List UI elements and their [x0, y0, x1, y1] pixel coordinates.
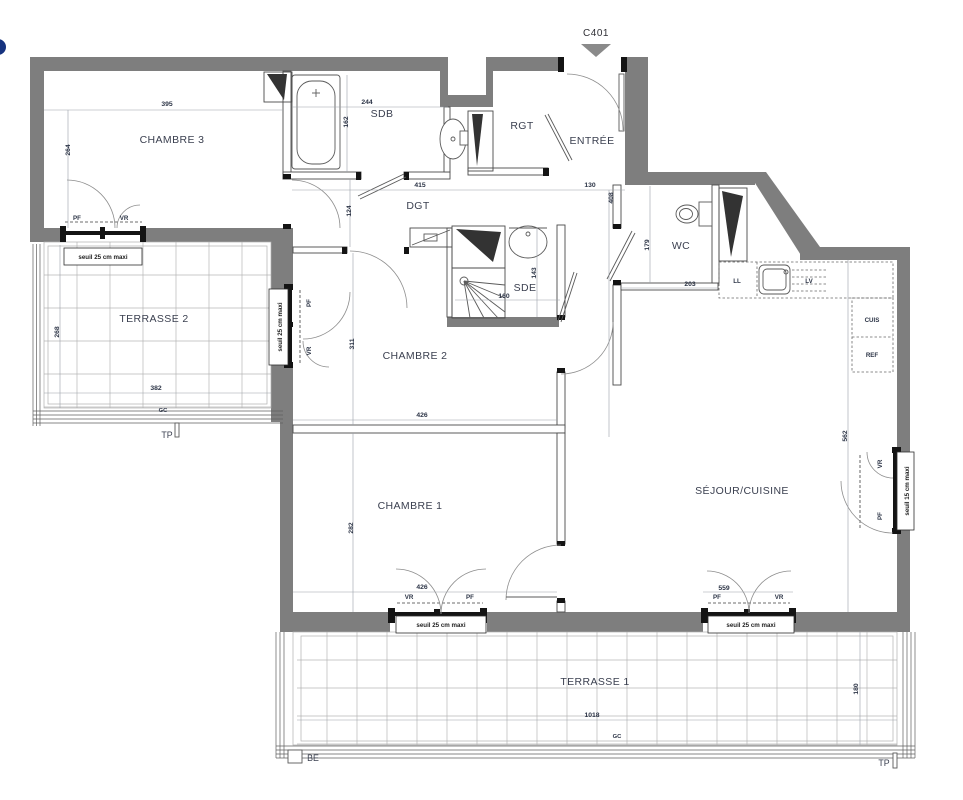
- sdb-washbasin: [440, 119, 468, 159]
- room-label-terrasse1: TERRASSE 1: [560, 676, 629, 688]
- rgt-door: [545, 114, 572, 161]
- dim-sdb-width: 244: [361, 99, 373, 106]
- unit-title: C401: [583, 28, 609, 39]
- floor-plan-drawing: C401: [0, 0, 963, 800]
- vr-label: VR: [775, 594, 784, 601]
- cooker-label: CUIS: [865, 317, 880, 324]
- dishwasher-label: LV: [805, 278, 813, 285]
- window-sejour-east: seuil 15 cm maxi VR PF: [841, 447, 914, 534]
- dim-chambre2-depth: 311: [349, 338, 356, 349]
- tp-label-terrasse2: TP: [161, 430, 172, 440]
- dim-dgt-length: 415: [414, 182, 426, 189]
- dim-entree-depth: 408: [608, 192, 615, 204]
- kitchen-units: LL LV CUIS REF: [719, 262, 893, 372]
- floor-plan-page: C401: [0, 0, 963, 800]
- dim-sde-depth: 143: [531, 267, 538, 279]
- shower-tray: [452, 268, 505, 318]
- pf-label: PF: [306, 299, 313, 307]
- gc-label-terrasse1: GC: [613, 734, 623, 740]
- dim-chambre3-width: 395: [161, 101, 173, 108]
- be-marker: [288, 750, 302, 763]
- window-chambre1: seuil 25 cm maxi VR PF: [388, 569, 487, 633]
- vr-label: VR: [877, 459, 884, 468]
- terrasse1-floor-border: [293, 632, 897, 745]
- terrasse2-floor-inner-border: [48, 246, 267, 404]
- dim-sejour-depth: 562: [842, 430, 849, 442]
- room-label-chambre2: CHAMBRE 2: [383, 350, 448, 362]
- entrance-door: [567, 74, 624, 131]
- terrasse2-grid: [44, 242, 271, 408]
- terrasse2-tp-marker: [175, 423, 179, 437]
- tp-label-terrasse1: TP: [878, 758, 889, 768]
- be-label: BE: [307, 753, 319, 763]
- room-label-terrasse2: TERRASSE 2: [119, 313, 188, 325]
- seuil-label: seuil 25 cm maxi: [277, 302, 284, 351]
- dim-chambre3-depth: 264: [65, 144, 72, 156]
- doors: [292, 74, 635, 600]
- terrasse1-grid: [297, 632, 897, 745]
- dim-terrasse1-depth: 180: [853, 683, 860, 695]
- bathtub: [292, 75, 340, 169]
- dgt-closet: [410, 228, 452, 247]
- room-label-dgt: DGT: [406, 200, 430, 212]
- chambre2-door: [350, 251, 407, 308]
- sde-washbasin: [509, 226, 547, 258]
- room-label-sde: SDE: [514, 282, 537, 294]
- fridge-label: REF: [866, 352, 879, 359]
- small-annotations: GC GC TP TP BE: [159, 408, 890, 768]
- dim-terrasse1-width: 1018: [584, 712, 599, 719]
- kitchen-tall-units: [852, 298, 893, 372]
- dim-chambre1-width: 426: [416, 584, 428, 591]
- dim-terrasse2-depth: 268: [54, 326, 61, 338]
- sejour-door: [558, 272, 613, 374]
- dim-chambre2-width: 426: [416, 412, 428, 419]
- seuil-label: seuil 25 cm maxi: [726, 622, 775, 629]
- pf-label: PF: [73, 215, 81, 222]
- wc-toilet: [676, 202, 712, 226]
- pf-label: PF: [877, 512, 884, 520]
- dim-terrasse2-width: 382: [150, 385, 162, 392]
- logo-dot: [0, 39, 6, 55]
- dim-sejour-window: 559: [718, 585, 730, 592]
- gc-label-terrasse2: GC: [159, 408, 169, 414]
- seuil-label: seuil 15 cm maxi: [904, 466, 911, 515]
- rgt-pivot-door: [468, 111, 493, 171]
- dimension-lines: [44, 75, 897, 745]
- dim-chambre1-depth: 282: [348, 522, 355, 534]
- room-labels: CHAMBRE 3 SDB RGT ENTRÉE DGT WC SDE CHAM…: [119, 108, 789, 688]
- wc-side-pivot-door: [719, 188, 747, 261]
- window-chambre2-west: seuil 25 cm maxi PF VR: [269, 284, 350, 368]
- room-label-rgt: RGT: [510, 120, 534, 132]
- pf-label: PF: [713, 594, 721, 601]
- seuil-label: seuil 25 cm maxi: [416, 622, 465, 629]
- terrasse2-floor-border: [44, 242, 271, 408]
- dim-dgt-width: 124: [346, 205, 353, 217]
- dim-sdb-depth: 162: [343, 116, 350, 128]
- dim-wc-width: 203: [684, 281, 696, 288]
- window-sejour-south: seuil 25 cm maxi PF VR: [701, 571, 796, 633]
- vr-label: VR: [306, 346, 313, 355]
- room-label-sdb: SDB: [371, 108, 394, 120]
- dim-wc-depth: 179: [644, 239, 651, 251]
- terrasse1-tp-marker: [893, 753, 897, 768]
- terrasse1-railing: [276, 632, 915, 768]
- vr-label: VR: [120, 215, 129, 222]
- room-label-wc: WC: [672, 240, 690, 252]
- sdb-door: [358, 174, 406, 199]
- kitchen-sink: [759, 265, 790, 294]
- pf-label: PF: [466, 594, 474, 601]
- room-label-entree: ENTRÉE: [570, 134, 615, 147]
- room-label-chambre1: CHAMBRE 1: [378, 500, 443, 512]
- dim-sde-width: 160: [498, 293, 510, 300]
- shower-enclosure: [452, 226, 505, 268]
- room-label-sejour: SÉJOUR/CUISINE: [695, 484, 789, 497]
- chambre3-door: [292, 180, 340, 228]
- window-chambre3: seuil 25 cm maxi PF VR: [60, 180, 146, 265]
- washer-label: LL: [733, 278, 741, 285]
- room-label-chambre3: CHAMBRE 3: [140, 134, 205, 146]
- seuil-label: seuil 25 cm maxi: [78, 254, 127, 261]
- vr-label: VR: [405, 594, 414, 601]
- dim-entree-width: 130: [584, 182, 596, 189]
- north-locator-triangle-icon: [581, 44, 611, 57]
- wc-door: [607, 231, 635, 281]
